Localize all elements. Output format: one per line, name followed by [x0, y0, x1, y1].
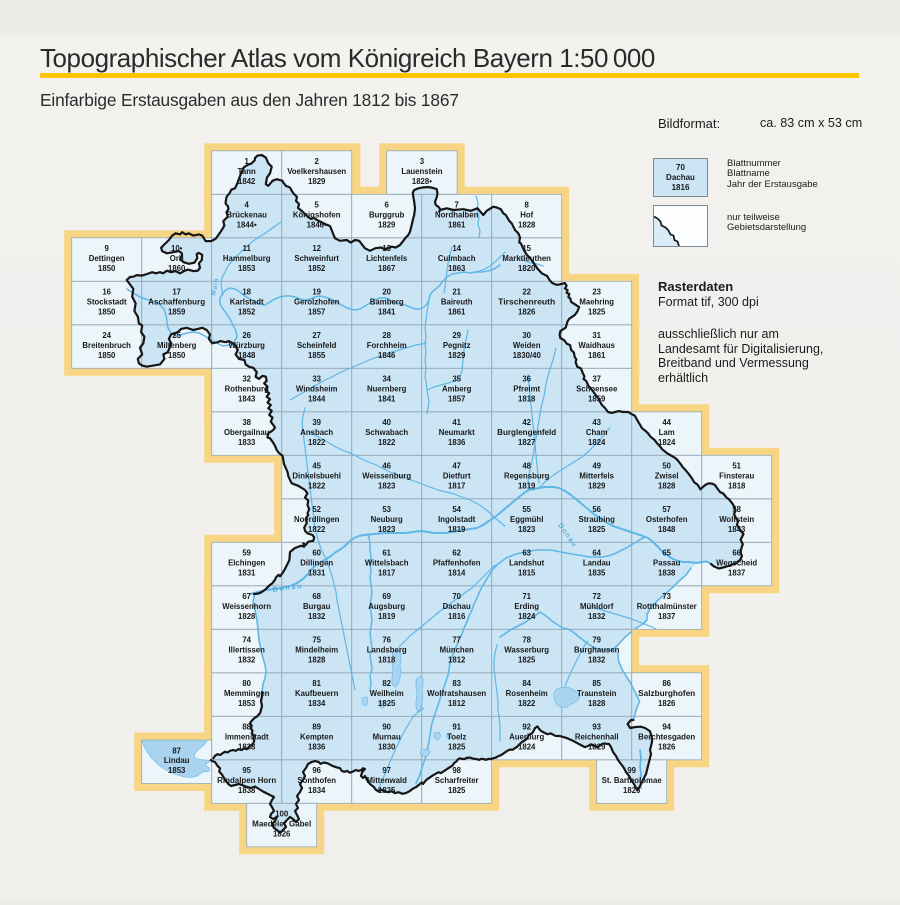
- svg-text:77: 77: [452, 636, 461, 645]
- svg-text:1842: 1842: [238, 177, 256, 186]
- svg-text:64: 64: [592, 549, 601, 558]
- svg-text:9: 9: [105, 244, 110, 253]
- svg-text:1837: 1837: [728, 568, 745, 577]
- svg-text:85: 85: [592, 679, 601, 688]
- svg-text:68: 68: [312, 592, 321, 601]
- svg-text:87: 87: [172, 746, 181, 755]
- svg-text:Nordhalben: Nordhalben: [435, 211, 479, 220]
- svg-text:4: 4: [245, 201, 250, 210]
- svg-text:1857: 1857: [448, 394, 465, 403]
- svg-text:1835: 1835: [378, 786, 396, 795]
- svg-text:3: 3: [420, 157, 425, 166]
- svg-text:Rothenburg: Rothenburg: [225, 385, 269, 394]
- svg-text:Immenstadt: Immenstadt: [225, 733, 269, 742]
- svg-text:1824: 1824: [518, 742, 536, 751]
- svg-text:1836: 1836: [308, 742, 326, 751]
- svg-text:Cham: Cham: [586, 428, 608, 437]
- svg-text:Sonthofen: Sonthofen: [297, 776, 336, 785]
- svg-text:Elchingen: Elchingen: [228, 559, 265, 568]
- svg-text:Wegscheid: Wegscheid: [716, 559, 757, 568]
- svg-text:Windsheim: Windsheim: [296, 385, 338, 394]
- svg-text:Straubing: Straubing: [579, 515, 616, 524]
- svg-text:19: 19: [312, 288, 321, 297]
- svg-text:1819: 1819: [378, 612, 396, 621]
- svg-text:Burghausen: Burghausen: [574, 646, 620, 655]
- svg-text:Neumarkt: Neumarkt: [439, 428, 475, 437]
- svg-text:Schweinfurt: Schweinfurt: [294, 254, 339, 263]
- svg-text:23: 23: [592, 288, 601, 297]
- svg-text:53: 53: [382, 505, 391, 514]
- svg-text:5: 5: [315, 201, 320, 210]
- svg-text:1: 1: [245, 157, 250, 166]
- svg-text:16: 16: [102, 288, 111, 297]
- svg-text:Dillingen: Dillingen: [300, 559, 333, 568]
- svg-text:59: 59: [242, 549, 251, 558]
- svg-text:Mittenwald: Mittenwald: [367, 776, 408, 785]
- svg-text:75: 75: [312, 636, 321, 645]
- svg-text:94: 94: [662, 723, 671, 732]
- svg-text:Illertissen: Illertissen: [228, 646, 265, 655]
- svg-text:Baireuth: Baireuth: [441, 298, 473, 307]
- svg-text:12: 12: [312, 244, 321, 253]
- svg-text:1829: 1829: [588, 481, 606, 490]
- svg-text:Waidhaus: Waidhaus: [578, 341, 615, 350]
- svg-text:84: 84: [522, 679, 531, 688]
- svg-text:22: 22: [522, 288, 531, 297]
- svg-text:76: 76: [382, 636, 391, 645]
- svg-text:Neuburg: Neuburg: [371, 515, 403, 524]
- svg-text:1850: 1850: [168, 351, 186, 360]
- svg-text:Nuernberg: Nuernberg: [367, 385, 407, 394]
- svg-text:1824: 1824: [658, 438, 676, 447]
- svg-text:41: 41: [452, 418, 461, 427]
- svg-text:Burglengenfeld: Burglengenfeld: [497, 428, 556, 437]
- svg-text:Rindalpen Horn: Rindalpen Horn: [217, 776, 276, 785]
- svg-text:Regensburg: Regensburg: [504, 472, 550, 481]
- svg-text:Weilheim: Weilheim: [370, 689, 404, 698]
- svg-text:93: 93: [592, 723, 601, 732]
- svg-text:1816: 1816: [448, 612, 466, 621]
- svg-text:1818: 1818: [518, 394, 536, 403]
- svg-text:Wittelsbach: Wittelsbach: [365, 559, 409, 568]
- svg-text:33: 33: [312, 375, 321, 384]
- svg-text:1850: 1850: [98, 307, 116, 316]
- svg-text:Würzburg: Würzburg: [229, 341, 266, 350]
- svg-text:1846•: 1846•: [307, 220, 327, 229]
- svg-text:Mindelheim: Mindelheim: [295, 646, 338, 655]
- svg-text:1828•: 1828•: [412, 177, 432, 186]
- svg-text:1844: 1844: [308, 394, 326, 403]
- svg-text:1825: 1825: [378, 699, 396, 708]
- svg-text:Kaufbeuern: Kaufbeuern: [295, 689, 339, 698]
- svg-text:Breitenbruch: Breitenbruch: [82, 341, 131, 350]
- svg-text:1822: 1822: [378, 438, 396, 447]
- svg-text:1848: 1848: [238, 351, 256, 360]
- svg-text:1852: 1852: [238, 307, 256, 316]
- svg-text:50: 50: [662, 462, 671, 471]
- svg-text:Tann: Tann: [238, 167, 256, 176]
- svg-text:Marktleuthen: Marktleuthen: [502, 254, 551, 263]
- svg-text:Weissenhorn: Weissenhorn: [222, 602, 271, 611]
- svg-text:97: 97: [382, 766, 391, 775]
- svg-text:56: 56: [592, 505, 601, 514]
- svg-text:2: 2: [315, 157, 320, 166]
- svg-text:1824: 1824: [518, 612, 536, 621]
- svg-text:62: 62: [452, 549, 461, 558]
- svg-text:35: 35: [452, 375, 461, 384]
- svg-text:28: 28: [382, 331, 391, 340]
- svg-text:Auerburg: Auerburg: [509, 733, 544, 742]
- svg-text:31: 31: [592, 331, 601, 340]
- svg-text:Berchtesgaden: Berchtesgaden: [638, 733, 695, 742]
- svg-text:1831: 1831: [238, 568, 256, 577]
- svg-text:1846: 1846: [378, 351, 396, 360]
- svg-text:67: 67: [242, 592, 251, 601]
- svg-text:1825: 1825: [518, 655, 536, 664]
- svg-text:Pfaffenhofen: Pfaffenhofen: [433, 559, 481, 568]
- svg-text:1855: 1855: [308, 351, 326, 360]
- svg-text:44: 44: [662, 418, 671, 427]
- svg-text:24: 24: [102, 331, 111, 340]
- svg-text:Wolfratshausen: Wolfratshausen: [427, 689, 486, 698]
- svg-text:1826: 1826: [658, 742, 676, 751]
- svg-text:1843: 1843: [728, 525, 746, 534]
- svg-text:1844•: 1844•: [237, 220, 257, 229]
- svg-text:Dietfurt: Dietfurt: [443, 472, 471, 481]
- svg-text:Amberg: Amberg: [442, 385, 472, 394]
- svg-text:100: 100: [275, 810, 289, 819]
- svg-text:Voelkershausen: Voelkershausen: [287, 167, 346, 176]
- svg-text:1850: 1850: [98, 264, 116, 273]
- svg-text:1822: 1822: [518, 699, 536, 708]
- svg-text:Augsburg: Augsburg: [368, 602, 405, 611]
- svg-text:Eggmühl: Eggmühl: [510, 515, 543, 524]
- svg-text:1841: 1841: [378, 394, 396, 403]
- svg-text:96: 96: [312, 766, 321, 775]
- svg-text:Lam: Lam: [659, 428, 675, 437]
- svg-text:Aschaffenburg: Aschaffenburg: [148, 298, 205, 307]
- svg-text:Burgau: Burgau: [303, 602, 331, 611]
- svg-text:Hammelburg: Hammelburg: [223, 254, 271, 263]
- svg-text:1829: 1829: [448, 351, 466, 360]
- svg-text:91: 91: [452, 723, 461, 732]
- svg-text:Brückenau: Brückenau: [227, 211, 268, 220]
- svg-text:80: 80: [242, 679, 251, 688]
- svg-text:Obergailnau: Obergailnau: [224, 428, 270, 437]
- svg-text:1825: 1825: [588, 307, 606, 316]
- svg-text:25: 25: [172, 331, 181, 340]
- svg-text:Lauenstein: Lauenstein: [401, 167, 442, 176]
- svg-text:Landau: Landau: [583, 559, 611, 568]
- svg-text:70: 70: [452, 592, 461, 601]
- svg-text:1819: 1819: [448, 525, 466, 534]
- svg-text:Salzburghofen: Salzburghofen: [638, 689, 695, 698]
- svg-text:1829: 1829: [308, 177, 326, 186]
- svg-text:1812: 1812: [448, 699, 466, 708]
- svg-text:Zwisel: Zwisel: [655, 472, 679, 481]
- svg-text:Traunstein: Traunstein: [577, 689, 617, 698]
- svg-text:1823: 1823: [518, 525, 536, 534]
- svg-text:Wasserburg: Wasserburg: [504, 646, 549, 655]
- svg-text:1825: 1825: [588, 525, 606, 534]
- svg-text:1824: 1824: [588, 438, 606, 447]
- svg-text:Dettingen: Dettingen: [89, 254, 125, 263]
- svg-text:Mühldorf: Mühldorf: [580, 602, 614, 611]
- svg-text:1820: 1820: [518, 264, 536, 273]
- svg-text:Weissenburg: Weissenburg: [362, 472, 411, 481]
- svg-text:40: 40: [382, 418, 391, 427]
- svg-text:1834: 1834: [308, 786, 326, 795]
- svg-text:74: 74: [242, 636, 251, 645]
- svg-text:1826: 1826: [623, 786, 641, 795]
- svg-text:65: 65: [662, 549, 671, 558]
- svg-text:1823: 1823: [378, 481, 396, 490]
- svg-text:47: 47: [452, 462, 461, 471]
- svg-text:Dinkelsbuehl: Dinkelsbuehl: [292, 472, 341, 481]
- svg-text:1822: 1822: [308, 481, 326, 490]
- svg-text:1853: 1853: [238, 264, 256, 273]
- svg-text:14: 14: [452, 244, 461, 253]
- svg-text:Pegnitz: Pegnitz: [443, 341, 471, 350]
- svg-text:78: 78: [522, 636, 531, 645]
- svg-text:61: 61: [382, 549, 391, 558]
- svg-text:1832: 1832: [308, 612, 326, 621]
- svg-text:57: 57: [662, 505, 671, 514]
- svg-text:1825: 1825: [448, 742, 466, 751]
- svg-text:98: 98: [452, 766, 461, 775]
- svg-text:1817: 1817: [448, 481, 465, 490]
- svg-text:82: 82: [382, 679, 391, 688]
- svg-text:89: 89: [312, 723, 321, 732]
- svg-text:1837: 1837: [658, 612, 675, 621]
- svg-text:Passau: Passau: [653, 559, 681, 568]
- svg-text:Ansbach: Ansbach: [300, 428, 333, 437]
- svg-text:1826: 1826: [658, 699, 676, 708]
- svg-text:1829: 1829: [588, 742, 606, 751]
- svg-text:1861: 1861: [448, 220, 466, 229]
- svg-text:1861: 1861: [448, 307, 466, 316]
- svg-text:1832: 1832: [588, 612, 606, 621]
- svg-text:73: 73: [662, 592, 671, 601]
- svg-text:72: 72: [592, 592, 601, 601]
- svg-text:Schoensee: Schoensee: [576, 385, 618, 394]
- svg-text:1826: 1826: [518, 307, 536, 316]
- svg-text:Königshofen: Königshofen: [293, 211, 341, 220]
- svg-text:Scheinfeld: Scheinfeld: [297, 341, 337, 350]
- svg-text:Murnau: Murnau: [373, 733, 401, 742]
- svg-text:1826: 1826: [273, 829, 291, 838]
- svg-text:Scharfreiter: Scharfreiter: [435, 776, 479, 785]
- svg-text:Kempten: Kempten: [300, 733, 334, 742]
- svg-text:52: 52: [312, 505, 321, 514]
- svg-text:1817: 1817: [378, 568, 395, 577]
- svg-text:1832: 1832: [588, 655, 606, 664]
- svg-text:79: 79: [592, 636, 601, 645]
- svg-text:Landsberg: Landsberg: [367, 646, 407, 655]
- svg-text:Erding: Erding: [514, 602, 539, 611]
- svg-text:Hof: Hof: [520, 211, 533, 220]
- svg-text:1827: 1827: [518, 438, 535, 447]
- svg-text:88: 88: [242, 723, 251, 732]
- svg-text:1859: 1859: [588, 394, 606, 403]
- svg-text:8: 8: [525, 201, 530, 210]
- svg-text:29: 29: [452, 331, 461, 340]
- svg-text:69: 69: [382, 592, 391, 601]
- svg-text:18: 18: [242, 288, 251, 297]
- svg-text:1830: 1830: [378, 742, 396, 751]
- svg-text:Noerdlingen: Noerdlingen: [294, 515, 340, 524]
- svg-text:1860: 1860: [168, 264, 186, 273]
- svg-text:Memmingen: Memmingen: [224, 689, 270, 698]
- svg-text:Tirschenreuth: Tirschenreuth: [498, 298, 555, 307]
- svg-text:66: 66: [732, 549, 741, 558]
- svg-text:1838: 1838: [658, 568, 676, 577]
- svg-text:1834: 1834: [308, 699, 326, 708]
- svg-text:Finsterau: Finsterau: [719, 472, 754, 481]
- svg-text:Culmbach: Culmbach: [438, 254, 476, 263]
- svg-text:1823: 1823: [378, 525, 396, 534]
- svg-text:11: 11: [243, 244, 252, 253]
- svg-text:17: 17: [172, 288, 181, 297]
- svg-text:37: 37: [592, 375, 601, 384]
- svg-text:30: 30: [522, 331, 531, 340]
- svg-text:86: 86: [662, 679, 671, 688]
- svg-text:Bamberg: Bamberg: [370, 298, 404, 307]
- svg-text:51: 51: [732, 462, 741, 471]
- svg-text:63: 63: [522, 549, 531, 558]
- svg-text:1818: 1818: [728, 481, 746, 490]
- svg-text:1833: 1833: [238, 438, 256, 447]
- svg-text:1863: 1863: [448, 264, 466, 273]
- svg-text:1831: 1831: [308, 568, 326, 577]
- svg-text:42: 42: [522, 418, 531, 427]
- svg-text:1852: 1852: [308, 264, 326, 273]
- svg-text:6: 6: [385, 201, 390, 210]
- svg-text:Forchheim: Forchheim: [367, 341, 407, 350]
- svg-text:34: 34: [382, 375, 391, 384]
- svg-text:Weiden: Weiden: [513, 341, 541, 350]
- svg-text:71: 71: [522, 592, 531, 601]
- svg-text:Dachau: Dachau: [443, 602, 471, 611]
- svg-text:Mitterfels: Mitterfels: [579, 472, 614, 481]
- svg-text:Landshut: Landshut: [509, 559, 544, 568]
- svg-text:1822: 1822: [308, 525, 326, 534]
- svg-text:1857: 1857: [308, 307, 325, 316]
- svg-text:München: München: [440, 646, 474, 655]
- svg-text:55: 55: [522, 505, 531, 514]
- svg-text:1828: 1828: [238, 612, 256, 621]
- svg-text:1841: 1841: [378, 307, 396, 316]
- svg-text:1822: 1822: [308, 438, 326, 447]
- svg-text:Burggrub: Burggrub: [369, 211, 405, 220]
- svg-text:Maehring: Maehring: [579, 298, 614, 307]
- svg-text:81: 81: [312, 679, 321, 688]
- svg-text:1814: 1814: [448, 568, 466, 577]
- svg-text:38: 38: [242, 418, 251, 427]
- svg-text:54: 54: [452, 505, 461, 514]
- svg-text:1836: 1836: [448, 438, 466, 447]
- svg-text:Osterhofen: Osterhofen: [646, 515, 688, 524]
- svg-text:1818: 1818: [378, 655, 396, 664]
- svg-text:1832: 1832: [238, 655, 256, 664]
- svg-text:45: 45: [312, 462, 321, 471]
- svg-text:60: 60: [312, 549, 321, 558]
- svg-text:1853: 1853: [238, 699, 256, 708]
- svg-text:St. Bartholomae: St. Bartholomae: [602, 776, 663, 785]
- svg-text:Lindau: Lindau: [164, 756, 190, 765]
- svg-text:15: 15: [522, 244, 531, 253]
- svg-text:32: 32: [242, 375, 251, 384]
- svg-text:Schwabach: Schwabach: [365, 428, 408, 437]
- svg-text:1828: 1828: [308, 655, 326, 664]
- svg-text:1859: 1859: [168, 307, 186, 316]
- svg-text:49: 49: [592, 462, 601, 471]
- svg-text:46: 46: [382, 462, 391, 471]
- svg-text:Toelz: Toelz: [447, 733, 466, 742]
- svg-text:1843: 1843: [238, 394, 256, 403]
- svg-text:1848: 1848: [658, 525, 676, 534]
- svg-text:Lichtenfels: Lichtenfels: [366, 254, 408, 263]
- svg-text:Maedeler Gabel: Maedeler Gabel: [252, 820, 311, 829]
- svg-text:Orb: Orb: [170, 254, 184, 263]
- svg-text:95: 95: [242, 766, 251, 775]
- svg-text:1838: 1838: [238, 786, 256, 795]
- svg-text:39: 39: [312, 418, 321, 427]
- svg-text:1828: 1828: [588, 699, 606, 708]
- svg-text:1812: 1812: [448, 655, 466, 664]
- svg-text:7: 7: [455, 201, 459, 210]
- svg-text:1838: 1838: [238, 742, 256, 751]
- svg-text:Wolfstein: Wolfstein: [719, 515, 754, 524]
- svg-text:99: 99: [627, 766, 636, 775]
- svg-text:1835: 1835: [588, 568, 606, 577]
- svg-text:13: 13: [382, 244, 391, 253]
- svg-text:58: 58: [732, 505, 741, 514]
- svg-text:92: 92: [522, 723, 531, 732]
- svg-text:Miltenberg: Miltenberg: [157, 341, 197, 350]
- svg-text:1828: 1828: [658, 481, 676, 490]
- svg-text:1850: 1850: [98, 351, 116, 360]
- svg-text:21: 21: [452, 288, 461, 297]
- svg-text:Ingolstadt: Ingolstadt: [438, 515, 476, 524]
- svg-text:1815: 1815: [518, 568, 536, 577]
- svg-text:26: 26: [242, 331, 251, 340]
- svg-text:10•: 10•: [171, 244, 183, 253]
- svg-text:1861: 1861: [588, 351, 606, 360]
- svg-text:Rosenheim: Rosenheim: [506, 689, 548, 698]
- svg-text:43: 43: [592, 418, 601, 427]
- svg-text:1867: 1867: [378, 264, 395, 273]
- svg-text:48: 48: [522, 462, 531, 471]
- svg-text:36: 36: [522, 375, 531, 384]
- svg-text:Pfreimt: Pfreimt: [513, 385, 540, 394]
- svg-text:1819: 1819: [518, 481, 536, 490]
- svg-text:1825: 1825: [448, 786, 466, 795]
- svg-text:1828: 1828: [518, 220, 536, 229]
- svg-text:1830/40: 1830/40: [513, 351, 542, 360]
- svg-text:27: 27: [312, 331, 321, 340]
- svg-text:90: 90: [382, 723, 391, 732]
- svg-text:Karlstadt: Karlstadt: [230, 298, 264, 307]
- svg-text:Reichenhall: Reichenhall: [575, 733, 619, 742]
- svg-text:20: 20: [382, 288, 391, 297]
- svg-text:83: 83: [452, 679, 461, 688]
- svg-text:1853: 1853: [168, 766, 186, 775]
- svg-text:Rottthalmünster: Rottthalmünster: [637, 602, 697, 611]
- svg-text:Stockstadt: Stockstadt: [87, 298, 127, 307]
- svg-text:Gerolzhofen: Gerolzhofen: [294, 298, 340, 307]
- svg-text:1829: 1829: [378, 220, 396, 229]
